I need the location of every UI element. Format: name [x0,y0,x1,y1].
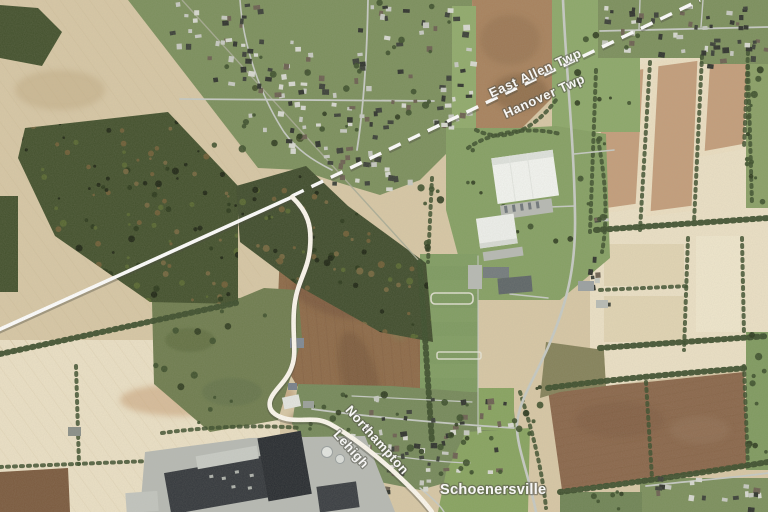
aerial-map-canvas[interactable]: East Allen Twp Hanover Twp Northampton L… [0,0,768,512]
aerial-map-viewport[interactable]: East Allen Twp Hanover Twp Northampton L… [0,0,768,512]
imagery-grain-overlay [0,0,768,512]
